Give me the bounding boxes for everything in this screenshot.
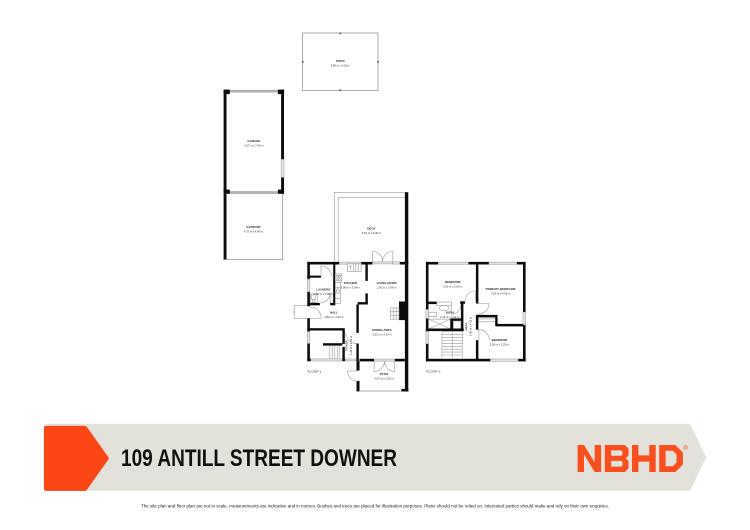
svg-text:1.80 m x 1.98 m: 1.80 m x 1.98 m: [314, 292, 334, 296]
svg-text:3.82 m x 1.94 m: 3.82 m x 1.94 m: [324, 315, 344, 319]
svg-text:DECK: DECK: [367, 227, 376, 231]
svg-text:5.10 m x 6.40 m: 5.10 m x 6.40 m: [362, 231, 382, 235]
svg-text:LIVING ROOM: LIVING ROOM: [377, 281, 398, 285]
svg-text:HALL: HALL: [330, 310, 338, 314]
svg-text:3.07 m x 2.25 m: 3.07 m x 2.25 m: [374, 376, 394, 380]
svg-text:1.00 m x 4.05 m: 1.00 m x 4.05 m: [468, 316, 472, 336]
svg-text:4.37 m x 4.96 m: 4.37 m x 4.96 m: [244, 229, 264, 233]
svg-text:KITCHEN: KITCHEN: [344, 281, 357, 285]
svg-text:4.27 m x 7.65 m: 4.27 m x 7.65 m: [244, 143, 264, 147]
svg-text:3.50 m x 4.59 m: 3.50 m x 4.59 m: [491, 292, 511, 296]
svg-text:CARPORT: CARPORT: [246, 225, 261, 229]
svg-text:3.52 m x 4.10 m: 3.52 m x 4.10 m: [372, 332, 392, 336]
svg-text:109 ANTILL STREET DOWNER: 109 ANTILL STREET DOWNER: [121, 445, 397, 472]
svg-text:BEDROOM: BEDROOM: [445, 280, 461, 284]
svg-text:3.50 m x 6.26 m: 3.50 m x 6.26 m: [331, 64, 351, 68]
svg-text:PATIO: PATIO: [336, 59, 345, 63]
svg-text:PATIO: PATIO: [380, 372, 389, 376]
svg-text:3.60 m x 2.60 m: 3.60 m x 2.60 m: [443, 285, 463, 289]
svg-text:FOYER: FOYER: [345, 340, 349, 351]
svg-text:PRIMARY BEDROOM: PRIMARY BEDROOM: [486, 287, 516, 291]
svg-text:LAUNDRY: LAUNDRY: [316, 288, 330, 292]
svg-text:BATH: BATH: [446, 311, 454, 315]
svg-text:GARAGE: GARAGE: [247, 139, 260, 143]
svg-text:FLOOR 2: FLOOR 2: [427, 369, 441, 373]
svg-text:DINING AREA: DINING AREA: [372, 328, 392, 332]
svg-text:®: ®: [683, 444, 688, 452]
svg-text:HALL: HALL: [464, 322, 468, 330]
svg-text:FLOOR 1: FLOOR 1: [308, 369, 322, 373]
svg-text:3.00 m x 3.22 m: 3.00 m x 3.22 m: [490, 342, 510, 346]
svg-text:2.90 m x 3.09 m: 2.90 m x 3.09 m: [377, 286, 397, 290]
svg-text:1.26 m x 2.53 m: 1.26 m x 2.53 m: [349, 335, 353, 355]
svg-text:2.98 m x 3.04 m: 2.98 m x 3.04 m: [341, 286, 361, 290]
svg-text:The site plan and floor plan a: The site plan and floor plan are not to …: [141, 504, 609, 509]
svg-text:BEDROOM: BEDROOM: [492, 338, 508, 342]
